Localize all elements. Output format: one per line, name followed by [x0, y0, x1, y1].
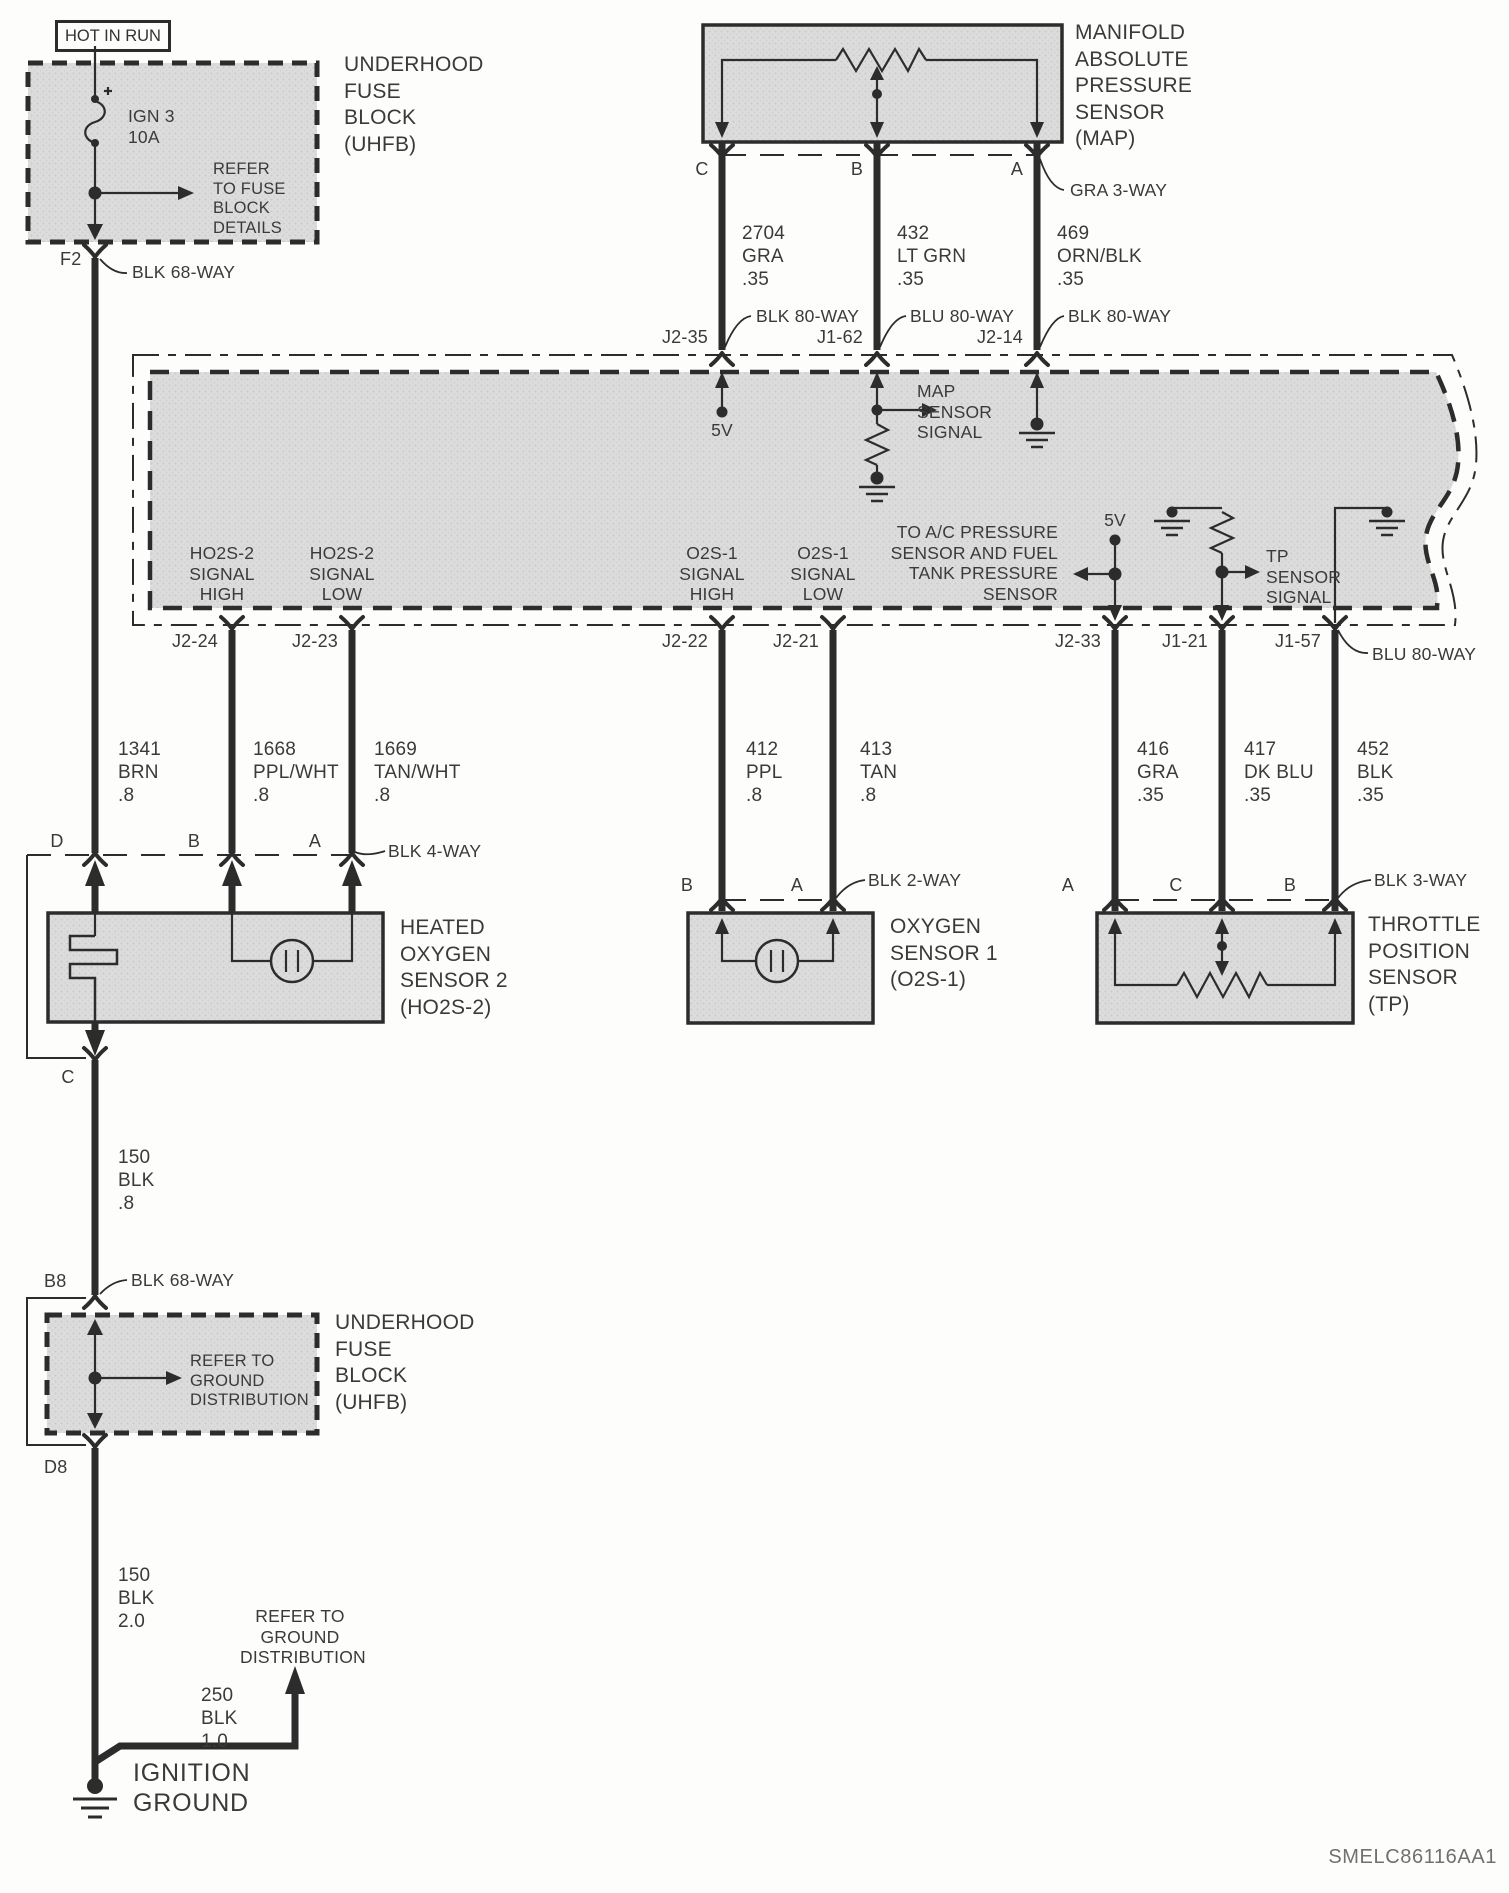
- ecm-pin-j2-35: J2-35: [628, 328, 708, 346]
- ecm-pin-j1-21: J1-21: [1128, 632, 1208, 650]
- ecm-5v-right-label: 5V: [1093, 510, 1137, 531]
- connector-label-blk68-bottom: BLK 68-WAY: [131, 1272, 234, 1290]
- uhfb-top-note: REFER TO FUSE BLOCK DETAILS: [213, 160, 286, 238]
- tp-pin-a: A: [1058, 876, 1078, 894]
- ho2s2-pin-b: B: [184, 832, 204, 850]
- pin-d8: D8: [44, 1458, 67, 1476]
- leader-blk68-bottom: [100, 1280, 127, 1294]
- dot-uhfb1-junction: [89, 187, 102, 200]
- arrow-up-ground-distribution: [285, 1666, 305, 1694]
- ecm-pin-j2-22: J2-22: [628, 632, 708, 650]
- pin-f2: F2: [60, 250, 81, 268]
- leader-blk2way: [836, 880, 865, 898]
- ecm-map-signal-label: MAP SENSOR SIGNAL: [917, 381, 992, 443]
- o2s1-box: [688, 913, 873, 1023]
- connector-label-blk68-top: BLK 68-WAY: [132, 264, 235, 282]
- ecm-pin-j2-33: J2-33: [1021, 632, 1101, 650]
- ecm-ac-note: TO A/C PRESSURE SENSOR AND FUEL TANK PRE…: [882, 522, 1058, 604]
- o2s1-pin-a: A: [787, 876, 807, 894]
- connector-j2-22: [711, 617, 733, 629]
- connector-f2: [84, 245, 106, 257]
- wire-label-150-lower: 150 BLK 2.0: [118, 1564, 155, 1633]
- connector-j2-24: [221, 617, 243, 629]
- arrow-down-ecm-j121: [1215, 605, 1229, 621]
- o2s1-title: OXYGEN SENSOR 1 (O2S-1): [890, 914, 998, 994]
- hot-in-run-tag: HOT IN RUN: [55, 20, 171, 52]
- ecm-pin-j1-62: J1-62: [783, 328, 863, 346]
- wire-250-branch: [95, 1692, 295, 1762]
- map-title: MANIFOLD ABSOLUTE PRESSURE SENSOR (MAP): [1075, 20, 1192, 153]
- dot-ecm-tp-ground: [1167, 507, 1178, 518]
- fuse-label: IGN 3 10A: [128, 106, 175, 147]
- o2s1-pin-b: B: [677, 876, 697, 894]
- wire-label-1341: 1341 BRN .8: [118, 738, 161, 807]
- dot-ecm-j214-ground: [1031, 418, 1044, 431]
- connector-d8: [84, 1435, 106, 1447]
- connector-label-blk80-2: BLK 80-WAY: [1068, 308, 1171, 326]
- ecm-pin-j2-23: J2-23: [258, 632, 338, 650]
- wire-label-2704: 2704 GRA .35: [742, 222, 785, 291]
- wire-label-452: 452 BLK .35: [1357, 738, 1394, 807]
- ecm-signal-o2s1-low: O2S-1 SIGNAL LOW: [755, 543, 891, 605]
- leader-blk3way: [1338, 880, 1371, 898]
- dot-fuse-top: [91, 95, 99, 103]
- ho2s2-title: HEATED OXYGEN SENSOR 2 (HO2S-2): [400, 915, 508, 1021]
- leader-blk68-top: [100, 259, 127, 273]
- dot-ecm-map-ground: [871, 472, 884, 485]
- dot-uhfb2-junction: [89, 1372, 102, 1385]
- connector-label-blk80-1: BLK 80-WAY: [756, 308, 859, 326]
- tp-pin-b: B: [1280, 876, 1300, 894]
- dot-tp-wiper: [1217, 941, 1227, 951]
- leader-blu80: [880, 316, 906, 347]
- uhfb-top-title: UNDERHOOD FUSE BLOCK (UHFB): [344, 52, 483, 158]
- label-leaders: [100, 159, 1371, 1294]
- wire-label-250: 250 BLK 1.0: [201, 1684, 238, 1753]
- ho2s2-box: [48, 913, 383, 1022]
- internal-lines: [70, 46, 1385, 1414]
- ecm-5v-top-label: 5V: [700, 420, 744, 441]
- connector-j2-23: [341, 617, 363, 629]
- wire-label-416: 416 GRA .35: [1137, 738, 1179, 807]
- connector-label-blk4way: BLK 4-WAY: [388, 843, 481, 861]
- leader-blk80-2: [1040, 316, 1064, 347]
- wire-label-413: 413 TAN .8: [860, 738, 897, 807]
- arrow-down-ecm-j233: [1108, 605, 1122, 621]
- connector-label-blk2way: BLK 2-WAY: [868, 872, 961, 890]
- ho2s2-pin-d: D: [47, 832, 67, 850]
- leader-blk4way: [355, 851, 385, 854]
- leader-blu80-bottom: [1338, 630, 1368, 653]
- wire-label-1669: 1669 TAN/WHT .8: [374, 738, 461, 807]
- uhfb-bottom-title: UNDERHOOD FUSE BLOCK (UHFB): [335, 1310, 474, 1416]
- dot-ecm-tp-junction: [1216, 566, 1229, 579]
- ho2s2-pin-a: A: [305, 832, 325, 850]
- ecm-signal-ho2s2-low: HO2S-2 SIGNAL LOW: [274, 543, 410, 605]
- wire-label-150-upper: 150 BLK .8: [118, 1146, 155, 1215]
- wire-label-432: 432 LT GRN .35: [897, 222, 966, 291]
- ecm-signal-ho2s2-high: HO2S-2 SIGNAL HIGH: [154, 543, 290, 605]
- ecm-pin-j2-24: J2-24: [138, 632, 218, 650]
- ho2s2-pin-c: C: [58, 1068, 78, 1086]
- ecm-tp-signal-label: TP SENSOR SIGNAL: [1266, 546, 1341, 608]
- wire-label-1668: 1668 PPL/WHT .8: [253, 738, 339, 807]
- leader-blk80-1: [725, 316, 751, 347]
- tp-pin-c: C: [1166, 876, 1186, 894]
- wire-label-412: 412 PPL .8: [746, 738, 783, 807]
- map-pin-c: C: [692, 160, 712, 178]
- ecm-pin-j1-57: J1-57: [1241, 632, 1321, 650]
- connector-j2-21: [822, 617, 844, 629]
- diagram-code: SMELC86116AA1: [1240, 1846, 1497, 1869]
- connector-b8: [84, 1296, 106, 1308]
- wire-label-469: 469 ORN/BLK .35: [1057, 222, 1142, 291]
- ground-distribution-note: REFER TO GROUND DISTRIBUTION: [240, 1606, 360, 1668]
- connector-label-blu80-bottom: BLU 80-WAY: [1372, 646, 1476, 664]
- ecm-pin-j2-21: J2-21: [739, 632, 819, 650]
- map-pin-b: B: [847, 160, 867, 178]
- pin-b8: B8: [44, 1272, 66, 1290]
- dot-ecm-5v-right: [1110, 535, 1121, 546]
- wiring-diagram-page: HOT IN RUN UNDERHOOD FUSE BLOCK (UHFB) I…: [0, 0, 1509, 1893]
- connector-label-blk3way: BLK 3-WAY: [1374, 872, 1467, 890]
- dot-ecm-map-signal: [872, 405, 883, 416]
- dot-fuse-bottom: [91, 139, 99, 147]
- uhfb-bottom-note: REFER TO GROUND DISTRIBUTION: [190, 1352, 309, 1411]
- connector-label-blu80: BLU 80-WAY: [910, 308, 1014, 326]
- map-pin-a: A: [1007, 160, 1027, 178]
- leader-gra3way: [1040, 159, 1064, 190]
- wire-label-417: 417 DK BLU .35: [1244, 738, 1314, 807]
- connector-label-gra3way: GRA 3-WAY: [1070, 182, 1167, 200]
- ground-ignition: [73, 1799, 117, 1817]
- tp-title: THROTTLE POSITION SENSOR (TP): [1368, 912, 1480, 1018]
- ignition-ground-label: IGNITION GROUND: [133, 1758, 251, 1818]
- ecm-pin-j2-14: J2-14: [943, 328, 1023, 346]
- dot-ecm-5v: [717, 407, 728, 418]
- dot-ignition-ground: [87, 1778, 103, 1794]
- dot-map-wiper: [872, 89, 882, 99]
- dot-ecm-j157-ground: [1382, 507, 1393, 518]
- dot-ecm-ac-junction: [1109, 568, 1122, 581]
